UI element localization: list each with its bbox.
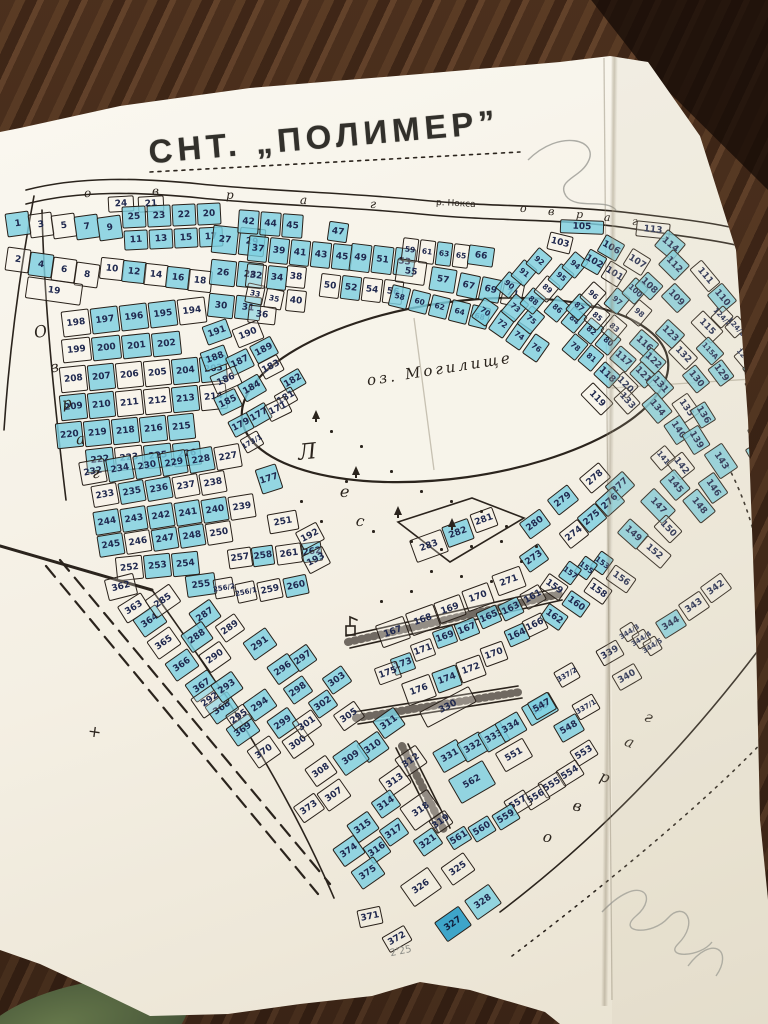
plot-cell: 218 [111, 417, 141, 446]
plot-cell: 15 [173, 227, 198, 248]
plot-cell: 11 [123, 229, 148, 250]
pencil-scribble [528, 140, 616, 210]
plot-cell: 206 [115, 361, 145, 390]
plot-cell: 247 [150, 526, 179, 552]
tree-icon [352, 466, 360, 475]
plot-cell: 38 [285, 265, 307, 289]
forest-dot [490, 580, 493, 583]
plot-cell: 208 [59, 365, 89, 394]
plot-cell: 44 [259, 211, 282, 236]
plot-cell: 63 [435, 241, 454, 267]
building-flag [350, 617, 357, 626]
plot-cell: 219 [83, 419, 113, 448]
forest-dot [300, 500, 303, 503]
forest-dot [390, 470, 393, 473]
plot-cell: 201 [121, 333, 152, 360]
plot-cell: 200 [91, 335, 122, 362]
rav-left: а [75, 430, 86, 449]
plot-cell: 55 [394, 258, 427, 286]
rav-top-1: о [84, 186, 92, 200]
plot-cell: 50 [319, 273, 342, 299]
plot-cell: 258 [251, 545, 276, 568]
rav-top-1: р [226, 188, 234, 202]
forest-dot [450, 500, 453, 503]
plot-cell: 57 [428, 266, 457, 294]
forest-dot [460, 575, 463, 578]
plot-cell: 253 [143, 553, 172, 580]
plot-cell: 239 [227, 493, 256, 521]
plot-cell: 197 [90, 305, 121, 334]
plot-cell: 194 [177, 296, 208, 325]
plot-cell: 47 [327, 221, 350, 244]
plot-cell: 39 [268, 237, 291, 265]
plot-cell: 34 [266, 265, 288, 291]
forest-dot [430, 570, 433, 573]
tree-icon [394, 506, 402, 515]
plot-cell: 105 [560, 219, 604, 235]
plot-cell: 45 [281, 213, 304, 238]
plot-cell: 235 [117, 479, 146, 505]
plot-cell: 227 [213, 443, 243, 471]
plot-cell: 202 [151, 331, 182, 358]
plot-cell: 228 [186, 446, 216, 474]
plot-cell: 26 [209, 259, 238, 288]
plot-cell: 230 [132, 452, 162, 480]
plot-cell: 216 [139, 415, 169, 444]
plot-cell: 199 [61, 337, 92, 364]
forest-dot [330, 430, 333, 433]
rav-top-1: г [370, 197, 377, 211]
forest-dot [360, 445, 363, 448]
plot-cell: 22 [171, 203, 196, 226]
plot-cell: 248 [177, 523, 206, 549]
rav-top-1: а [300, 193, 308, 207]
rav-top-1: в [152, 184, 159, 198]
forest-dot [320, 520, 323, 523]
plot-cell: 40 [285, 289, 307, 313]
plot-cell: 30 [207, 293, 235, 320]
plot-cell: 42 [237, 209, 260, 234]
plot-cell: 229 [159, 449, 189, 477]
plus-mark: + [87, 721, 103, 742]
plot-cell: 41 [289, 239, 312, 267]
plot-cell: 233 [90, 482, 119, 508]
plot-cell: 52 [340, 275, 363, 301]
forest-dot [470, 545, 473, 548]
rav-top-2: о [520, 202, 527, 215]
plot-cell: 23 [146, 204, 171, 227]
rav-left: г [91, 464, 100, 482]
plot-cell: 25 [121, 205, 146, 228]
forest-dot [410, 540, 413, 543]
plot-cell: 37 [247, 235, 270, 263]
forest-dot [505, 525, 508, 528]
plot-cell: 66 [467, 244, 496, 267]
plot-cell: 210 [87, 391, 117, 420]
rav-top-2: р [576, 208, 584, 221]
plot-cell: 196 [119, 302, 150, 331]
plot-cell: 32 [245, 263, 267, 289]
plot-cell: 256/2 [212, 576, 235, 599]
plot-cell: 256/1 [234, 580, 258, 604]
plot-cell: 213 [171, 385, 201, 414]
plot-cell: 205 [143, 359, 173, 388]
plot-cell: 261 [275, 542, 304, 565]
forest-dot [440, 548, 443, 551]
forest-dot [420, 490, 423, 493]
rav-top-2: в [548, 205, 555, 218]
plot-cell: 20 [196, 202, 221, 225]
plot-cell: 254 [171, 551, 200, 578]
plot-cell: 51 [370, 245, 394, 275]
photo-scene: 2421135792523222011131517246810121416181… [0, 0, 768, 1024]
forest-dot [380, 600, 383, 603]
forest-dot [500, 540, 503, 543]
plot-cell: 27 [211, 225, 240, 256]
forest-dot [520, 560, 523, 563]
forest-dot [410, 590, 413, 593]
plot-cell: 245 [96, 532, 125, 558]
plot-cell: 49 [348, 243, 372, 273]
forest-dot [535, 545, 538, 548]
plot-cell: 204 [171, 357, 201, 386]
plot-cell: 238 [198, 470, 227, 496]
plot-cell: 215 [167, 413, 197, 442]
plot-cell: 207 [87, 363, 117, 392]
map-paper: 2421135792523222011131517246810121416181… [0, 0, 768, 1024]
plot-cell: 43 [310, 241, 333, 269]
plot-cell: 9 [96, 214, 123, 241]
plot-cell: 250 [204, 520, 233, 546]
forest-dot [372, 530, 375, 533]
plot-cell: 236 [144, 476, 173, 502]
plot-cell: 211 [115, 389, 145, 418]
plot-cell: 13 [148, 228, 173, 249]
rav-left: р [61, 393, 73, 412]
forest: Л [297, 439, 318, 466]
plot-cell: 237 [171, 473, 200, 499]
plot-cell: 54 [361, 277, 384, 303]
plot-cell: 195 [148, 299, 179, 328]
forest: е [339, 482, 350, 502]
tree-icon [448, 518, 456, 527]
forest-dot [480, 510, 483, 513]
plot-cell: 198 [61, 308, 92, 337]
plot-cell: 246 [123, 529, 152, 555]
plot-cell: 234 [105, 455, 135, 483]
plot-cell: 257 [227, 546, 254, 569]
river-label: р. Нокса [436, 198, 476, 210]
tree-icon [312, 410, 320, 419]
plot-cell: 212 [143, 387, 173, 416]
